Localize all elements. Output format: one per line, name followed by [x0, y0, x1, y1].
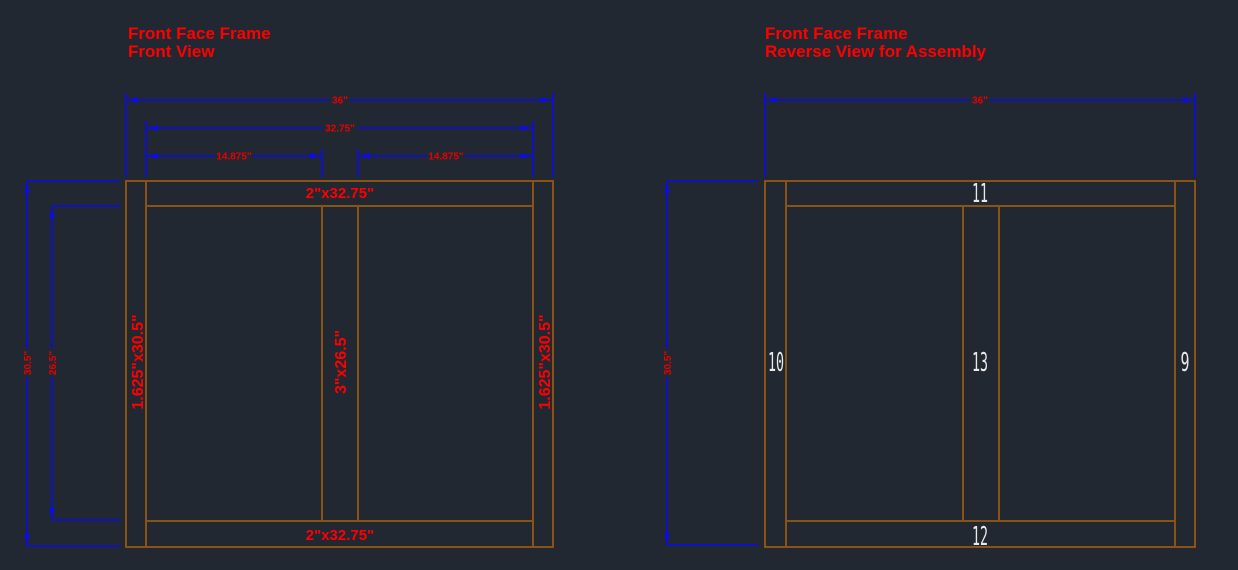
inner-height-dim: 26.5": [48, 351, 59, 375]
right-view: Front Face Frame Reverse View for Assemb…: [663, 24, 1195, 552]
overall-height-dim: 30.5": [23, 351, 34, 375]
cad-drawing-canvas[interactable]: Front Face Frame Front View 36" 32.75": [0, 0, 1238, 570]
arrowhead: [49, 508, 54, 520]
right-view-title-line1: Front Face Frame: [765, 24, 908, 43]
arrowhead: [310, 153, 322, 158]
right-opening-width-dim: 14.875": [428, 152, 464, 163]
left-view-title-line2: Front View: [128, 42, 215, 61]
center-stile-part-number: 13: [972, 348, 988, 378]
arrowhead: [521, 125, 533, 130]
overall-height-dim: 30.5": [663, 351, 674, 375]
bottom-rail-part-number: 12: [972, 522, 988, 552]
arrowhead: [146, 125, 158, 130]
arrowhead: [24, 181, 29, 193]
top-rail-part-number: 11: [972, 179, 988, 209]
left-view-title-line1: Front Face Frame: [128, 24, 271, 43]
bottom-rail-label: 2"x32.75": [306, 527, 374, 544]
arrowhead: [541, 97, 553, 102]
arrowhead: [664, 533, 669, 545]
right-view-title-line2: Reverse View for Assembly: [765, 42, 987, 61]
left-stile-label: 1.625"x30.5": [130, 314, 147, 409]
center-stile-label: 3"x26.5": [333, 330, 350, 394]
overall-width-dim: 36": [972, 96, 988, 107]
arrowhead: [664, 181, 669, 193]
left-stile-part-number: 10: [768, 348, 784, 378]
right-stile-part-number: 9: [1181, 348, 1190, 378]
arrowhead: [765, 97, 777, 102]
arrowhead: [146, 153, 158, 158]
overall-width-dim: 36": [332, 96, 348, 107]
arrowhead: [49, 206, 54, 218]
arrowhead: [358, 153, 370, 158]
top-rail-label: 2"x32.75": [306, 185, 374, 202]
arrowhead: [126, 97, 138, 102]
left-view: Front Face Frame Front View 36" 32.75": [23, 24, 554, 547]
face-frame-drawing: Front Face Frame Front View 36" 32.75": [0, 0, 1238, 570]
arrowhead: [521, 153, 533, 158]
inner-width-dim: 32.75": [325, 124, 355, 135]
arrowhead: [1183, 97, 1195, 102]
right-stile-label: 1.625"x30.5": [537, 314, 554, 409]
left-opening-width-dim: 14.875": [216, 152, 252, 163]
arrowhead: [24, 534, 29, 546]
